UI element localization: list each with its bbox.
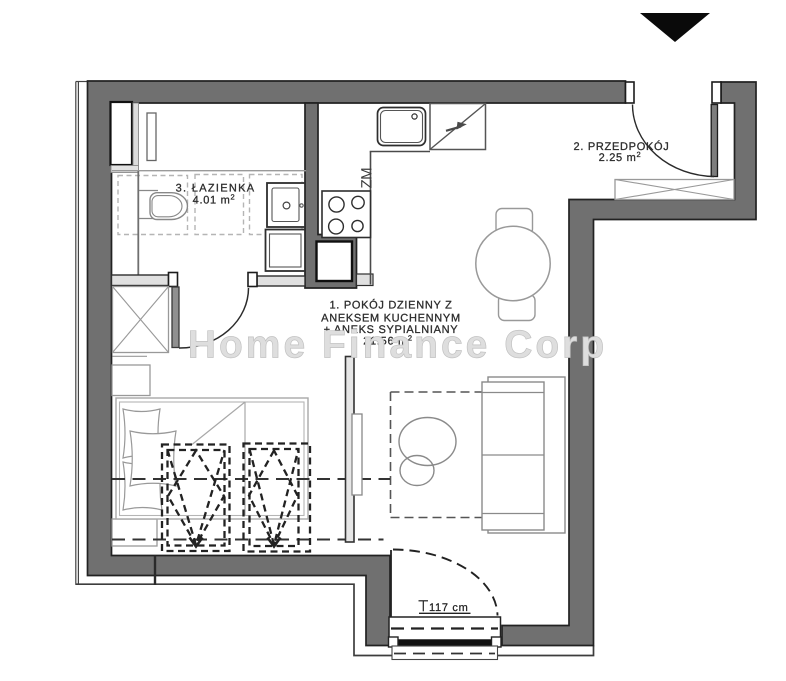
svg-text:3. ŁAZIENKA: 3. ŁAZIENKA: [176, 183, 256, 195]
svg-text:Home Finance Corp: Home Finance Corp: [188, 324, 607, 367]
svg-text:4.01 m2: 4.01 m2: [193, 192, 236, 206]
svg-text:117 cm: 117 cm: [429, 602, 468, 614]
svg-text:2.25 m2: 2.25 m2: [599, 150, 642, 164]
svg-text:1. POKÓJ DZIENNY Z: 1. POKÓJ DZIENNY Z: [329, 299, 452, 312]
svg-text:2. PRZEDPOKÓJ: 2. PRZEDPOKÓJ: [574, 140, 670, 153]
svg-text:ZM: ZM: [359, 168, 376, 189]
